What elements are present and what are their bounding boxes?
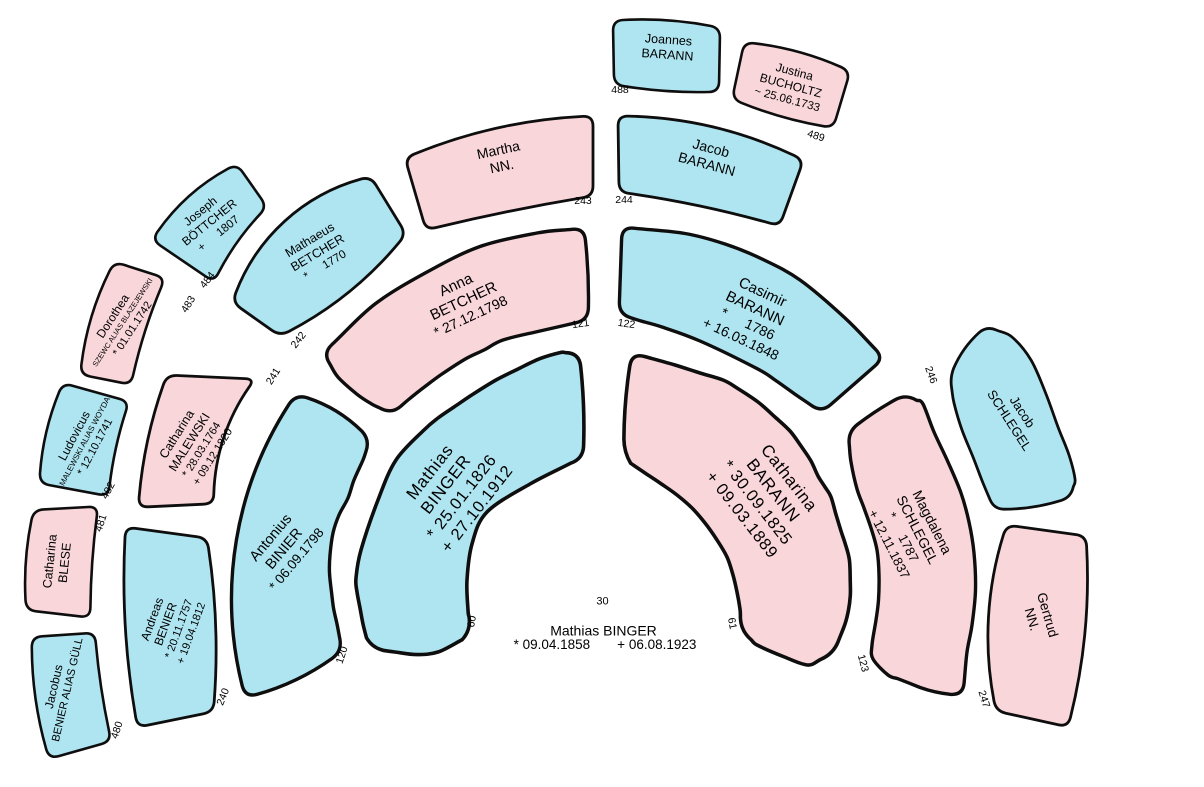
svg-text:61: 61 — [725, 617, 739, 631]
svg-text:30: 30 — [596, 596, 608, 608]
svg-text:244: 244 — [615, 194, 633, 206]
svg-text:121: 121 — [571, 317, 590, 331]
svg-text:488: 488 — [611, 84, 629, 96]
svg-text:122: 122 — [617, 317, 636, 331]
svg-text:60: 60 — [465, 615, 479, 629]
svg-text:* 09.04.1858 + 06.08.1923: * 09.04.1858 + 06.08.1923 — [514, 637, 697, 652]
svg-text:243: 243 — [574, 195, 592, 207]
